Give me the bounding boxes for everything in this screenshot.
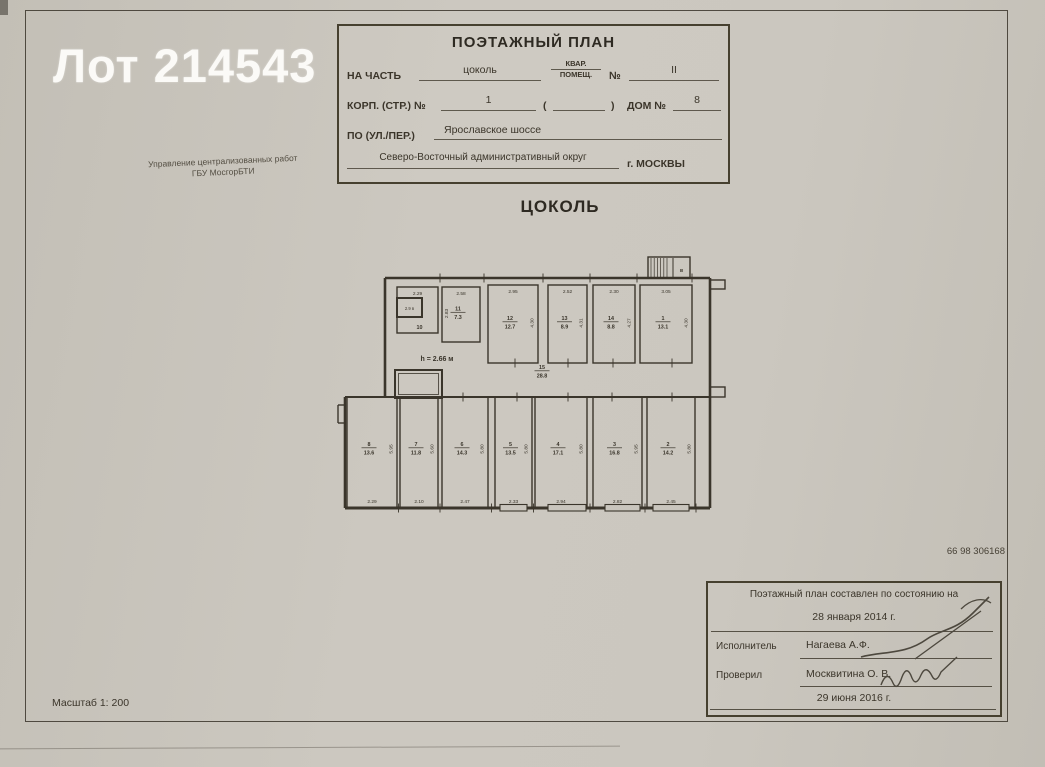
room-12-depth-dim: 4.30	[530, 318, 536, 328]
room-11-width-dim: 2.58	[456, 291, 466, 297]
kvar-label: КВАР.	[551, 59, 601, 70]
room-2-area: 14.2	[663, 451, 674, 457]
room-5-depth-dim: 5.80	[524, 444, 530, 454]
checker-signature	[881, 657, 957, 686]
room-14-depth-dim: 4.27	[627, 318, 633, 328]
room-6-area: 14.3	[457, 451, 468, 457]
room-1-depth-dim: 4.30	[684, 318, 690, 328]
room-11-depth-dim: 2.83	[444, 309, 450, 319]
city-value: г. МОСКВЫ	[627, 158, 685, 170]
executor-signature-flourish	[915, 600, 991, 659]
korp-value: 1	[441, 90, 536, 111]
kvar-pomesh-label: КВАР. ПОМЕЩ.	[551, 59, 601, 80]
room-5-number: 5	[509, 442, 512, 448]
title-block: ПОЭТАЖНЫЙ ПЛАН НА ЧАСТЬ цоколь КВАР. ПОМ…	[337, 24, 730, 184]
room-3-number: 3	[613, 442, 616, 448]
window	[548, 505, 586, 512]
room-12-number: 12	[507, 316, 513, 322]
pomesh-label: ПОМЕЩ.	[560, 70, 592, 79]
executor-signature	[861, 597, 989, 657]
room-13-number: 13	[562, 316, 568, 322]
scan-corner-artifact	[0, 0, 8, 15]
wall-stub-right-corridor	[710, 387, 725, 397]
room-7-width-dim: 2.10	[414, 499, 424, 505]
stair-label: в	[680, 268, 683, 274]
room-8-number: 8	[368, 442, 371, 448]
corridor-number: 15	[539, 365, 545, 371]
executor-label: Исполнитель	[716, 641, 777, 652]
room-6-number: 6	[461, 442, 464, 448]
window	[653, 505, 689, 512]
floor-plan: в2.9 в2.29102.58117.32.832.951212.74.302…	[335, 245, 730, 530]
street-label: ПО (УЛ./ПЕР.)	[347, 130, 415, 142]
shaft-inner-outline	[399, 374, 439, 395]
room-2-depth-dim: 5.80	[687, 444, 693, 454]
room-5-area: 13.5	[505, 451, 516, 457]
na-chast-label: НА ЧАСТЬ	[347, 70, 401, 82]
room-6-depth-dim: 5.80	[480, 444, 486, 454]
room-11-area: 7.3	[454, 315, 462, 321]
dom-label: ДОМ №	[627, 100, 666, 112]
room-13-area: 8.9	[561, 325, 569, 331]
room-10-width-dim: 2.29	[413, 291, 423, 297]
room-10-number: 10	[417, 325, 423, 331]
room-3-area: 16.8	[609, 451, 620, 457]
room-11-number: 11	[455, 307, 461, 313]
room-5-width-dim: 2.33	[509, 499, 519, 505]
scanned-floor-plan-document: { "watermark": "Лот 214543", "organizati…	[0, 0, 1045, 767]
room-4-width-dim: 2.94	[556, 499, 566, 505]
signatures	[843, 589, 998, 699]
stamp-rule-4	[710, 709, 996, 710]
scale-label: Масштаб 1: 200	[52, 697, 129, 709]
room-14-area: 8.8	[607, 325, 615, 331]
na-chast-value: цоколь	[419, 60, 541, 81]
room-3-width-dim: 2.82	[613, 499, 623, 505]
inventory-number: 66 98 306168	[870, 546, 1005, 557]
document-title: ПОЭТАЖНЫЙ ПЛАН	[339, 34, 728, 51]
paren-open: (	[543, 100, 547, 112]
room-3-depth-dim: 5.95	[634, 444, 640, 454]
room-7-depth-dim: 5.60	[430, 444, 436, 454]
room-6-width-dim: 2.47	[460, 499, 470, 505]
lot-watermark: Лот 214543	[53, 38, 316, 93]
room-1-area: 13.1	[658, 325, 669, 331]
room-13-depth-dim: 4.31	[579, 318, 585, 328]
room-14-width-dim: 2.30	[609, 289, 619, 295]
floor-plan-drawing: в2.9 в2.29102.58117.32.832.951212.74.302…	[335, 245, 730, 530]
room-7-number: 7	[415, 442, 418, 448]
room-4-area: 17.1	[553, 451, 564, 457]
room-7-area: 11.8	[411, 451, 421, 457]
window	[605, 505, 640, 512]
room-2-width-dim: 2.45	[666, 499, 676, 505]
room-12-area: 12.7	[505, 325, 516, 331]
number-value: II	[629, 60, 719, 81]
room-1-number: 1	[662, 316, 665, 322]
paren-close: )	[611, 100, 615, 112]
okrug-value: Северо-Восточный административный округ	[347, 148, 619, 169]
closet-label: 2.9 в	[405, 306, 415, 311]
stamp-block: Поэтажный план составлен по состоянию на…	[706, 581, 1002, 717]
room-1-width-dim: 3.05	[661, 289, 671, 295]
room-14-number: 14	[608, 316, 614, 322]
room-8-width-dim: 2.29	[367, 499, 377, 505]
paren-blank-line	[553, 90, 605, 111]
room-2-number: 2	[667, 442, 670, 448]
room-13-width-dim: 2.52	[563, 289, 573, 295]
street-value: Ярославское шоссе	[434, 120, 722, 140]
floor-name-heading: ЦОКОЛЬ	[460, 197, 660, 217]
checker-label: Проверил	[716, 670, 762, 681]
room-12-width-dim: 2.95	[508, 289, 518, 295]
dom-value: 8	[673, 90, 721, 111]
number-label: №	[609, 70, 621, 82]
korp-label: КОРП. (СТР.) №	[347, 100, 426, 112]
room-4-number: 4	[557, 442, 560, 448]
window	[500, 505, 527, 512]
room-8-area: 13.6	[364, 451, 375, 457]
room-4-depth-dim: 5.80	[579, 444, 585, 454]
scan-edge-line	[0, 746, 620, 750]
shaft-outline	[395, 370, 442, 398]
wall-stub-right-upper	[710, 280, 725, 289]
ceiling-height-note: h = 2.66 м	[420, 356, 453, 363]
corridor-area: 28.8	[537, 374, 548, 380]
room-8-depth-dim: 5.95	[389, 444, 395, 454]
